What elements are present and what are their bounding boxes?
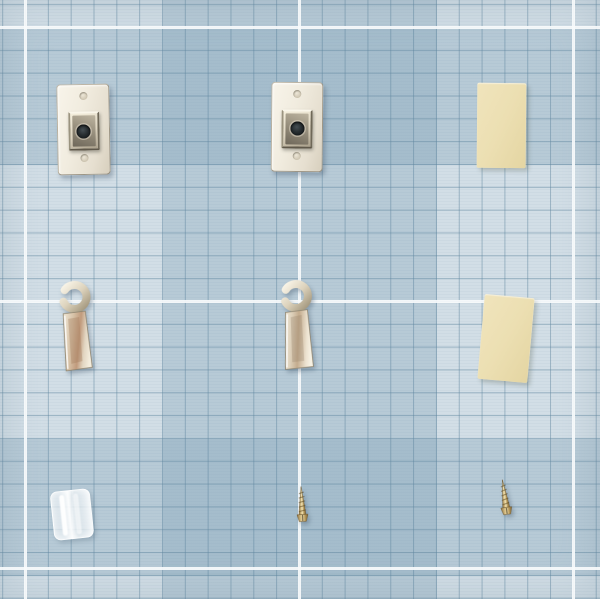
plate-top-screw-hole (293, 90, 301, 98)
adhesive-pad-1 (477, 83, 527, 168)
plate-bottom-screw-hole (80, 154, 88, 162)
adhesive-pad-2 (477, 294, 534, 383)
plate-raised-boss (68, 111, 100, 151)
clear-plastic-anchor (50, 488, 95, 541)
keyhole-hanger-plate-2 (271, 82, 324, 172)
plate-boss-inner-frame (72, 116, 96, 147)
hook-shape (54, 281, 100, 374)
plate-bottom-screw-hole (293, 152, 301, 160)
plate-keyhole (76, 124, 90, 138)
white-guide-hline (0, 567, 600, 570)
brass-screw-1 (293, 485, 311, 527)
hook-shape (274, 279, 321, 372)
plate-top-screw-hole (79, 92, 87, 100)
plate-boss-inner-frame (285, 113, 308, 144)
plug-highlight (73, 493, 82, 535)
screw-shape (293, 485, 311, 527)
plate-raised-boss (281, 109, 312, 148)
plug-highlight (59, 495, 68, 537)
metal-hook-1 (54, 281, 100, 374)
metal-hook-2 (274, 279, 321, 372)
white-guide-hline (0, 26, 600, 29)
plate-keyhole (290, 122, 304, 136)
keyhole-hanger-plate-1 (56, 84, 111, 176)
